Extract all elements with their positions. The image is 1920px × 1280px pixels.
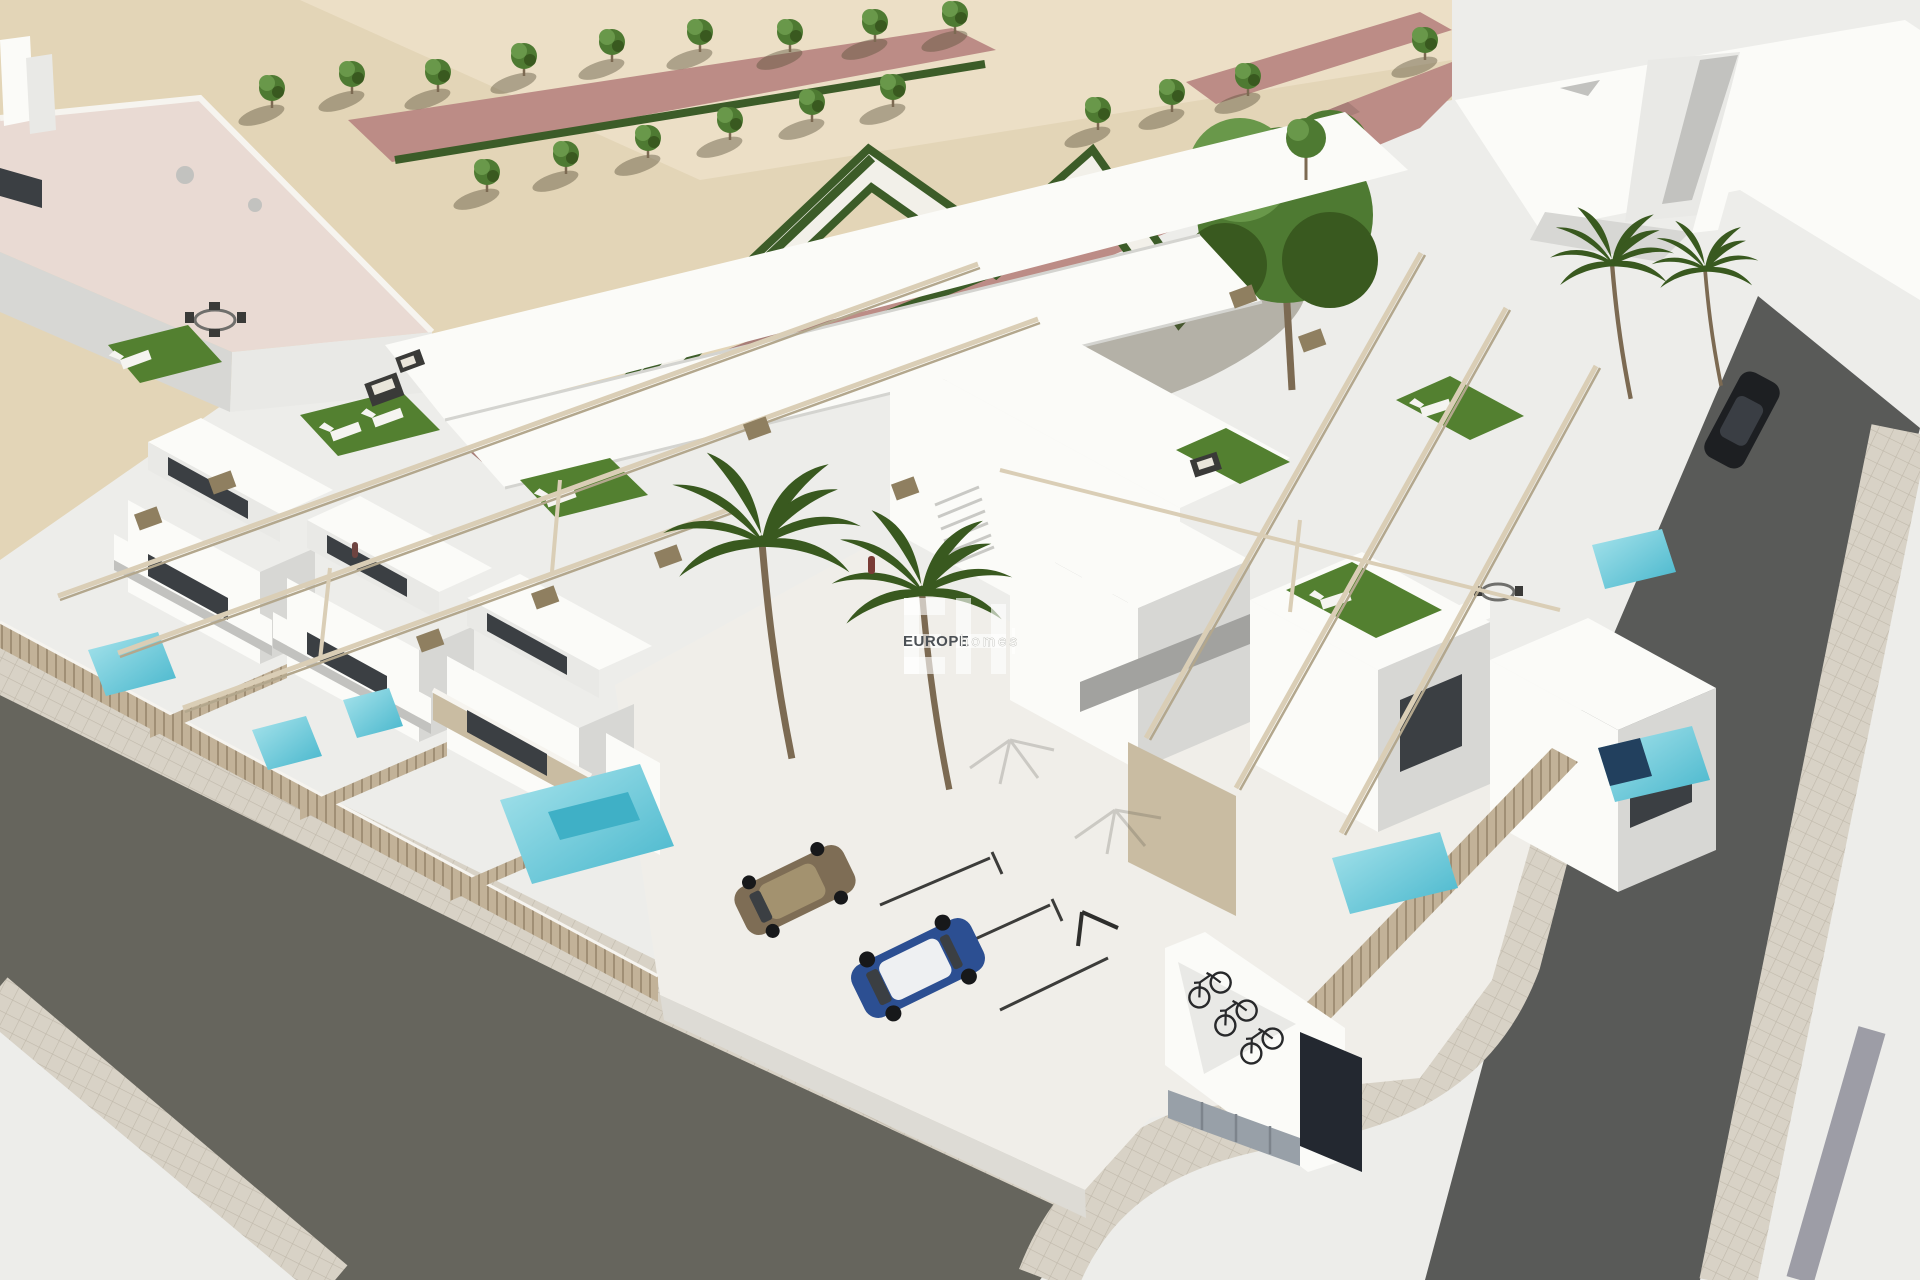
watermark-logo: EUROPE homes	[903, 598, 1020, 674]
rooftop-box-2	[26, 54, 56, 134]
watermark-brand-suffix: homes	[960, 633, 1020, 650]
roof-vent-dot	[248, 198, 262, 212]
render-canvas: EUROPE homes	[0, 0, 1920, 1280]
architectural-render: EUROPE homes	[0, 0, 1920, 1280]
roof-vent-dot	[176, 166, 194, 184]
person-figure	[868, 556, 875, 574]
person-figure	[352, 542, 358, 558]
